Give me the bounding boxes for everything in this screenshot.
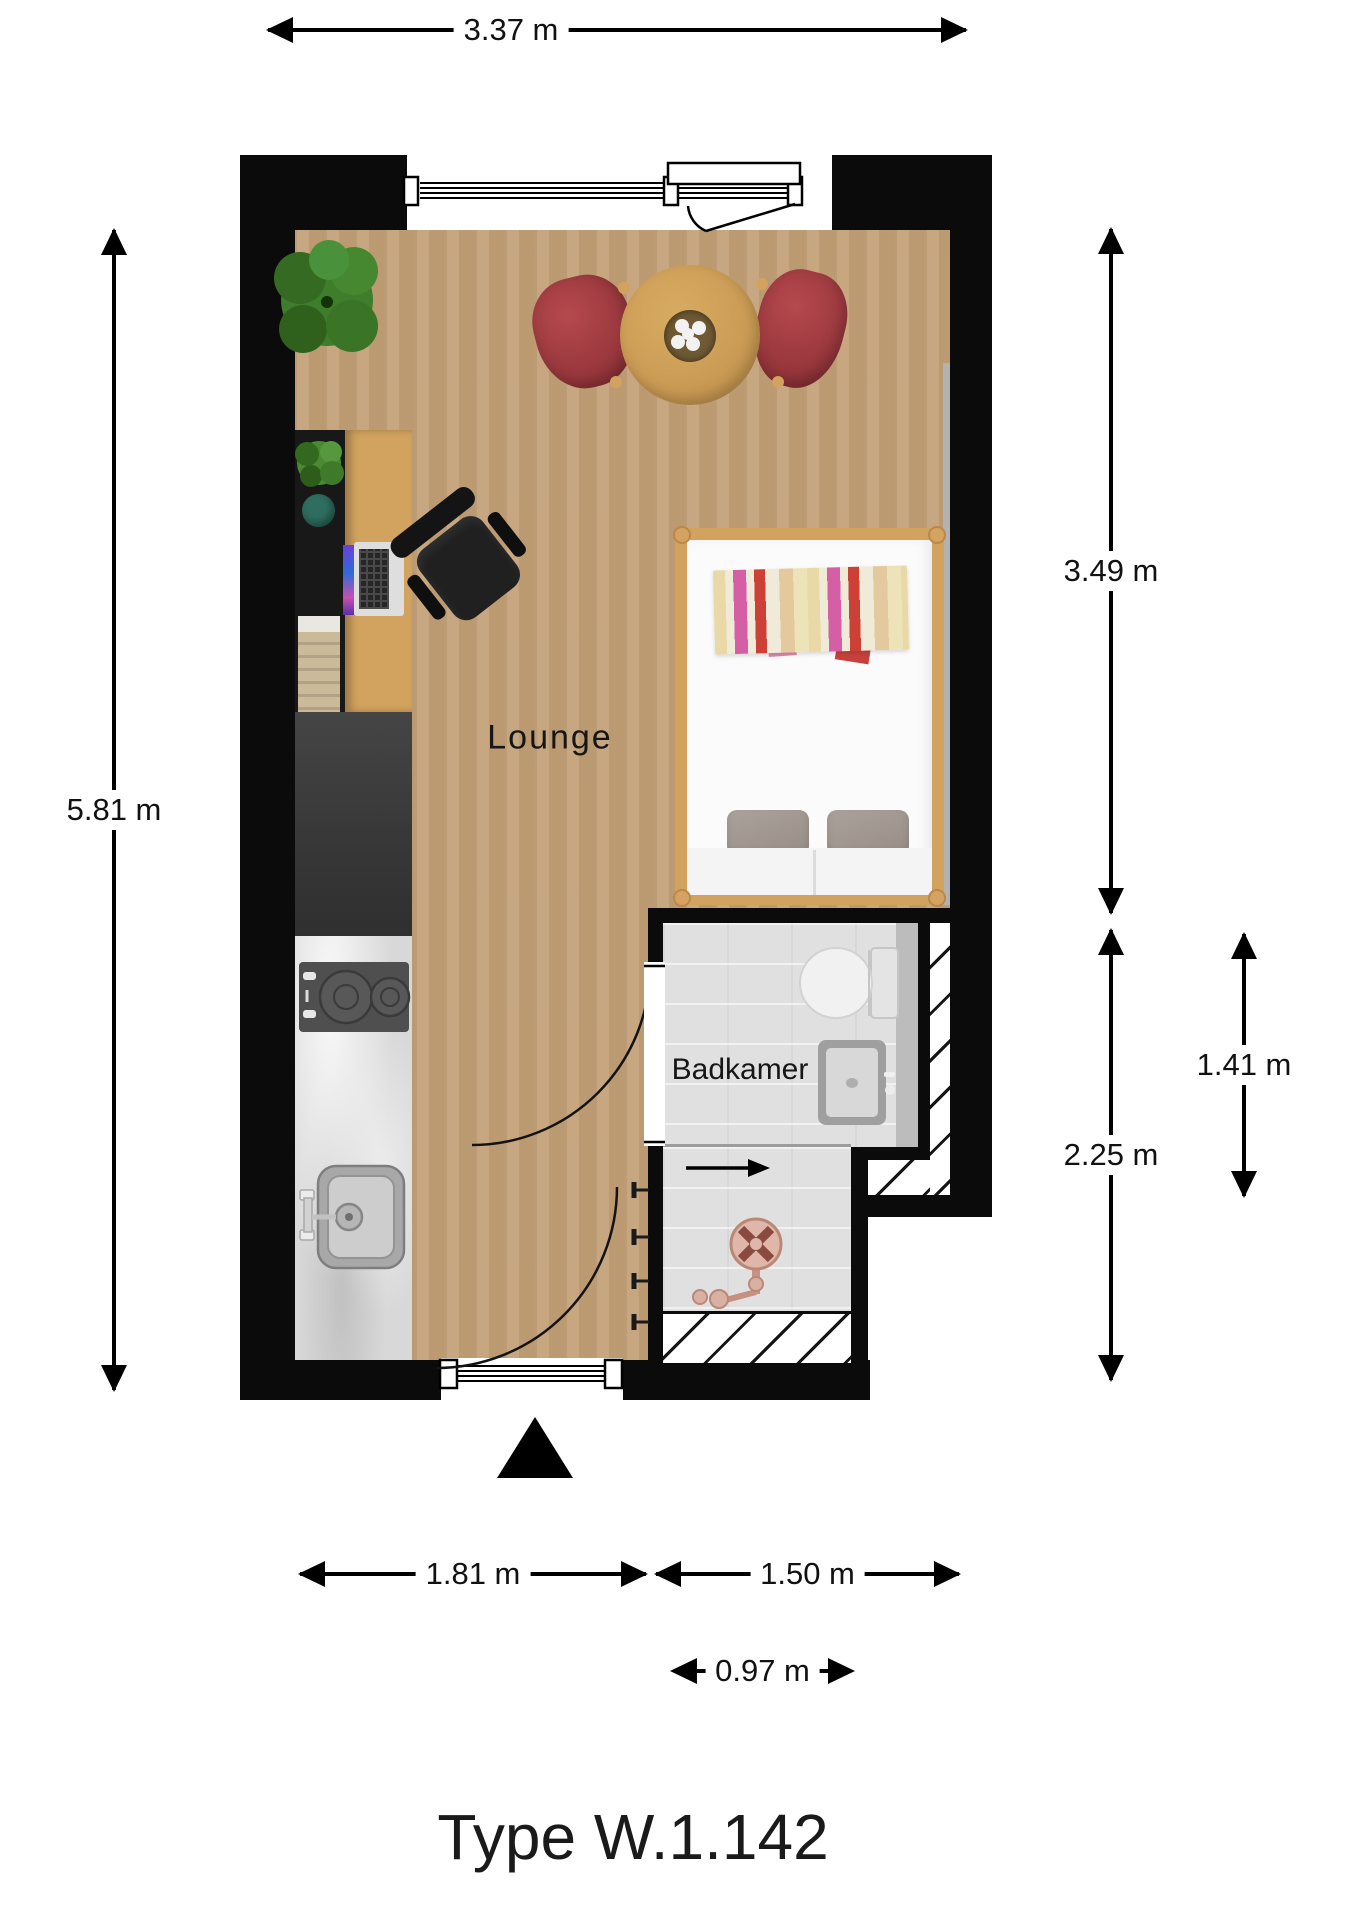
arrow-up-icon <box>1098 928 1124 955</box>
laptop-screen <box>343 545 354 615</box>
dimension-line <box>268 28 966 32</box>
entrance-arrow-icon <box>497 1417 573 1478</box>
arrow-right-icon <box>828 1658 855 1684</box>
arrow-left-icon <box>654 1561 681 1587</box>
dimension-bottom-right: 1.50 m <box>656 1557 959 1591</box>
arrow-down-icon <box>1098 888 1124 915</box>
floorplan-page: Lounge Badkamer 3.37 m 5.81 m 3.49 m 2.2… <box>0 0 1358 1920</box>
kitchen-tall-cabinet <box>295 712 412 938</box>
window-top-opening <box>407 155 832 230</box>
arrow-down-icon <box>101 1365 127 1392</box>
shaft-shower-side <box>868 1160 930 1195</box>
arrow-left-icon <box>298 1561 325 1587</box>
dimension-top-label: 3.37 m <box>454 12 569 48</box>
shaft-below-shower <box>663 1311 851 1363</box>
dimension-left-label: 5.81 m <box>59 790 170 830</box>
wall-right <box>950 155 992 1217</box>
dimension-right-upper-label: 3.49 m <box>1056 551 1167 591</box>
dimension-bottom-left: 1.81 m <box>300 1557 646 1591</box>
wall-bathroom-left <box>648 923 663 1400</box>
wall-bottom-left <box>240 1360 441 1400</box>
plan-title: Type W.1.142 <box>437 1800 828 1874</box>
arrow-down-icon <box>1098 1355 1124 1382</box>
arrow-right-icon <box>934 1561 961 1587</box>
shower-floor <box>663 1147 851 1313</box>
book-stack <box>298 616 340 716</box>
dimension-bottom-right-label: 1.50 m <box>750 1556 865 1592</box>
bathroom-vanity-counter <box>896 923 918 1147</box>
wall-bathroom-right <box>918 923 930 1147</box>
shaft-right <box>930 923 950 1195</box>
arrow-up-icon <box>101 228 127 255</box>
arrow-down-icon <box>1231 1171 1257 1198</box>
arrow-right-icon <box>621 1561 648 1587</box>
arrow-right-icon <box>941 17 968 43</box>
room-label-bathroom: Badkamer <box>672 1053 809 1087</box>
arrow-up-icon <box>1231 932 1257 959</box>
wall-left <box>240 155 295 1400</box>
floor-plan: Lounge Badkamer <box>0 0 1358 1920</box>
bed-blanket <box>713 565 909 654</box>
wall-bathroom-jog <box>851 1147 930 1160</box>
room-label-lounge: Lounge <box>487 719 612 758</box>
bathroom-floor <box>663 923 918 1147</box>
dimension-bottom-left-label: 1.81 m <box>416 1556 531 1592</box>
dimension-bathroom-height-label: 1.41 m <box>1189 1045 1300 1085</box>
dimension-right-upper: 3.49 m <box>1094 229 1128 913</box>
dimension-bathroom-width-label: 0.97 m <box>705 1653 820 1689</box>
arrow-left-icon <box>670 1658 697 1684</box>
table-vase <box>664 310 716 362</box>
arrow-left-icon <box>266 17 293 43</box>
dimension-bathroom-height: 1.41 m <box>1227 934 1261 1196</box>
bathroom-shower-divider <box>663 1144 851 1147</box>
dimension-right-lower-label: 2.25 m <box>1056 1135 1167 1175</box>
wall-shower-right <box>851 1160 868 1360</box>
cooktop <box>299 962 409 1032</box>
dimension-right-lower: 2.25 m <box>1094 930 1128 1380</box>
stool-teal <box>302 494 335 527</box>
bed-duvet-crease <box>813 850 816 895</box>
bed-duvet-foot <box>687 848 932 895</box>
wall-bathroom-top <box>648 908 950 923</box>
dimension-left: 5.81 m <box>97 230 131 1390</box>
entrance-door-opening <box>441 1358 623 1400</box>
arrow-up-icon <box>1098 227 1124 254</box>
dimension-top: 3.37 m <box>268 13 966 47</box>
wall-shaft-bottom <box>868 1195 992 1217</box>
dimension-bathroom-width: 0.97 m <box>672 1654 853 1688</box>
laptop-keyboard <box>359 549 389 609</box>
